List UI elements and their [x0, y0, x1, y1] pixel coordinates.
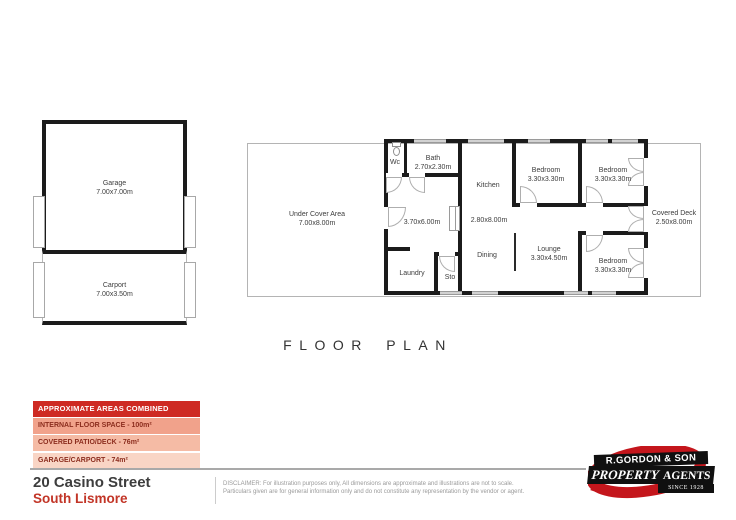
- room-label-carport: Carport 7.00x3.50m: [42, 281, 187, 299]
- covered-deck-name: Covered Deck: [646, 209, 702, 218]
- garage-dims: 7.00x7.00m: [42, 188, 187, 197]
- lounge-dims: 3.30x4.50m: [518, 254, 580, 263]
- legend-row-patio: COVERED PATIO/DECK - 76m²: [33, 435, 200, 451]
- window-symbol: [586, 139, 608, 143]
- room-label-bath: Bath 2.70x2.30m: [408, 154, 458, 172]
- address-street: 20 Casino Street: [33, 474, 151, 491]
- bedroom-name: Bedroom: [582, 166, 644, 175]
- bath-dims: 2.70x2.30m: [408, 163, 458, 172]
- areas-legend: APPROXIMATE AREAS COMBINED INTERNAL FLOO…: [33, 401, 200, 469]
- logo-since-band: SINCE 1928: [658, 484, 714, 493]
- under-cover-name: Under Cover Area: [267, 210, 367, 219]
- hall-dims: 2.80x8.00m: [458, 216, 520, 225]
- bedroom-dims: 3.30x3.30m: [582, 175, 644, 184]
- toilet-icon: [393, 147, 400, 156]
- door-opening: [644, 158, 648, 186]
- partial-wall: [514, 233, 516, 271]
- room-label-sto: Sto: [439, 273, 461, 282]
- garage-name: Garage: [42, 179, 187, 188]
- legend-row-garage: GARAGE/CARPORT - 74m²: [33, 453, 200, 469]
- wc-name: Wc: [384, 158, 406, 167]
- door-opening: [586, 203, 603, 207]
- window-symbol: [528, 139, 550, 143]
- covered-deck-dims: 2.50x8.00m: [646, 218, 702, 227]
- kitchen-name: Kitchen: [464, 181, 512, 190]
- room-label-wc: Wc: [384, 158, 406, 167]
- page-title: FLOOR PLAN: [0, 337, 736, 353]
- wall-segment: [434, 252, 438, 295]
- legend-header: APPROXIMATE AREAS COMBINED: [33, 401, 200, 417]
- logo-agents-text: AGENTS: [662, 470, 711, 482]
- footer-vertical-divider: [215, 477, 216, 504]
- carport-name: Carport: [42, 281, 187, 290]
- door-opening: [520, 203, 537, 207]
- address-suburb: South Lismore: [33, 491, 128, 506]
- window-symbol: [612, 139, 638, 143]
- window-symbol: [414, 139, 446, 143]
- laundry-name: Laundry: [390, 269, 434, 278]
- bedroom-name: Bedroom: [516, 166, 576, 175]
- window-symbol: [592, 291, 616, 295]
- garage-side-opening-left: [33, 196, 45, 248]
- bedroom-dims: 3.30x3.30m: [516, 175, 576, 184]
- carport-dims: 7.00x3.50m: [42, 290, 187, 299]
- room-label-lounge: Lounge 3.30x4.50m: [518, 245, 580, 263]
- window-symbol: [440, 291, 462, 295]
- under-cover-dims: 7.00x8.00m: [267, 219, 367, 228]
- disclaimer-line-2: Particulars given are for general inform…: [223, 489, 524, 495]
- room-label-bedroom-top-right: Bedroom 3.30x3.30m: [582, 166, 644, 184]
- bedroom-dims: 3.30x3.30m: [582, 266, 644, 275]
- room-label-hall: 2.80x8.00m: [458, 216, 520, 225]
- agency-logo: R.GORDON & SON PROPERTY AGENTS SINCE 192…: [588, 446, 714, 500]
- window-symbol: [472, 291, 498, 295]
- room-370-dims: 3.70x6.00m: [390, 218, 454, 227]
- room-label-garage: Garage 7.00x7.00m: [42, 179, 187, 197]
- logo-property-agents-band: PROPERTY AGENTS: [587, 466, 715, 484]
- window-symbol: [564, 291, 588, 295]
- disclaimer-text: DISCLAIMER: For illustration purposes on…: [223, 481, 568, 496]
- room-label-covered-deck: Covered Deck 2.50x8.00m: [646, 209, 702, 227]
- window-symbol: [468, 139, 504, 143]
- room-label-370: 3.70x6.00m: [390, 218, 454, 227]
- room-label-bedroom-top-mid: Bedroom 3.30x3.30m: [516, 166, 576, 184]
- dining-name: Dining: [464, 251, 510, 260]
- logo-property-text: PROPERTY: [591, 467, 660, 482]
- garage-side-opening-right: [184, 196, 196, 248]
- window-mullion: [455, 207, 456, 230]
- lounge-name: Lounge: [518, 245, 580, 254]
- room-label-bedroom-bottom-right: Bedroom 3.30x3.30m: [582, 257, 644, 275]
- wall-segment: [384, 247, 410, 251]
- bedroom-name: Bedroom: [582, 257, 644, 266]
- disclaimer-line-1: DISCLAIMER: For illustration purposes on…: [223, 481, 514, 487]
- floor-plan-page: Garage 7.00x7.00m Carport 7.00x3.50m: [0, 0, 736, 520]
- sto-name: Sto: [439, 273, 461, 282]
- footer-divider: [30, 468, 586, 470]
- room-label-dining: Dining: [464, 251, 510, 260]
- room-label-laundry: Laundry: [390, 269, 434, 278]
- legend-row-internal: INTERNAL FLOOR SPACE - 100m²: [33, 418, 200, 434]
- room-label-kitchen: Kitchen: [464, 181, 512, 190]
- room-label-under-cover: Under Cover Area 7.00x8.00m: [267, 210, 367, 228]
- door-opening: [644, 248, 648, 278]
- bath-name: Bath: [408, 154, 458, 163]
